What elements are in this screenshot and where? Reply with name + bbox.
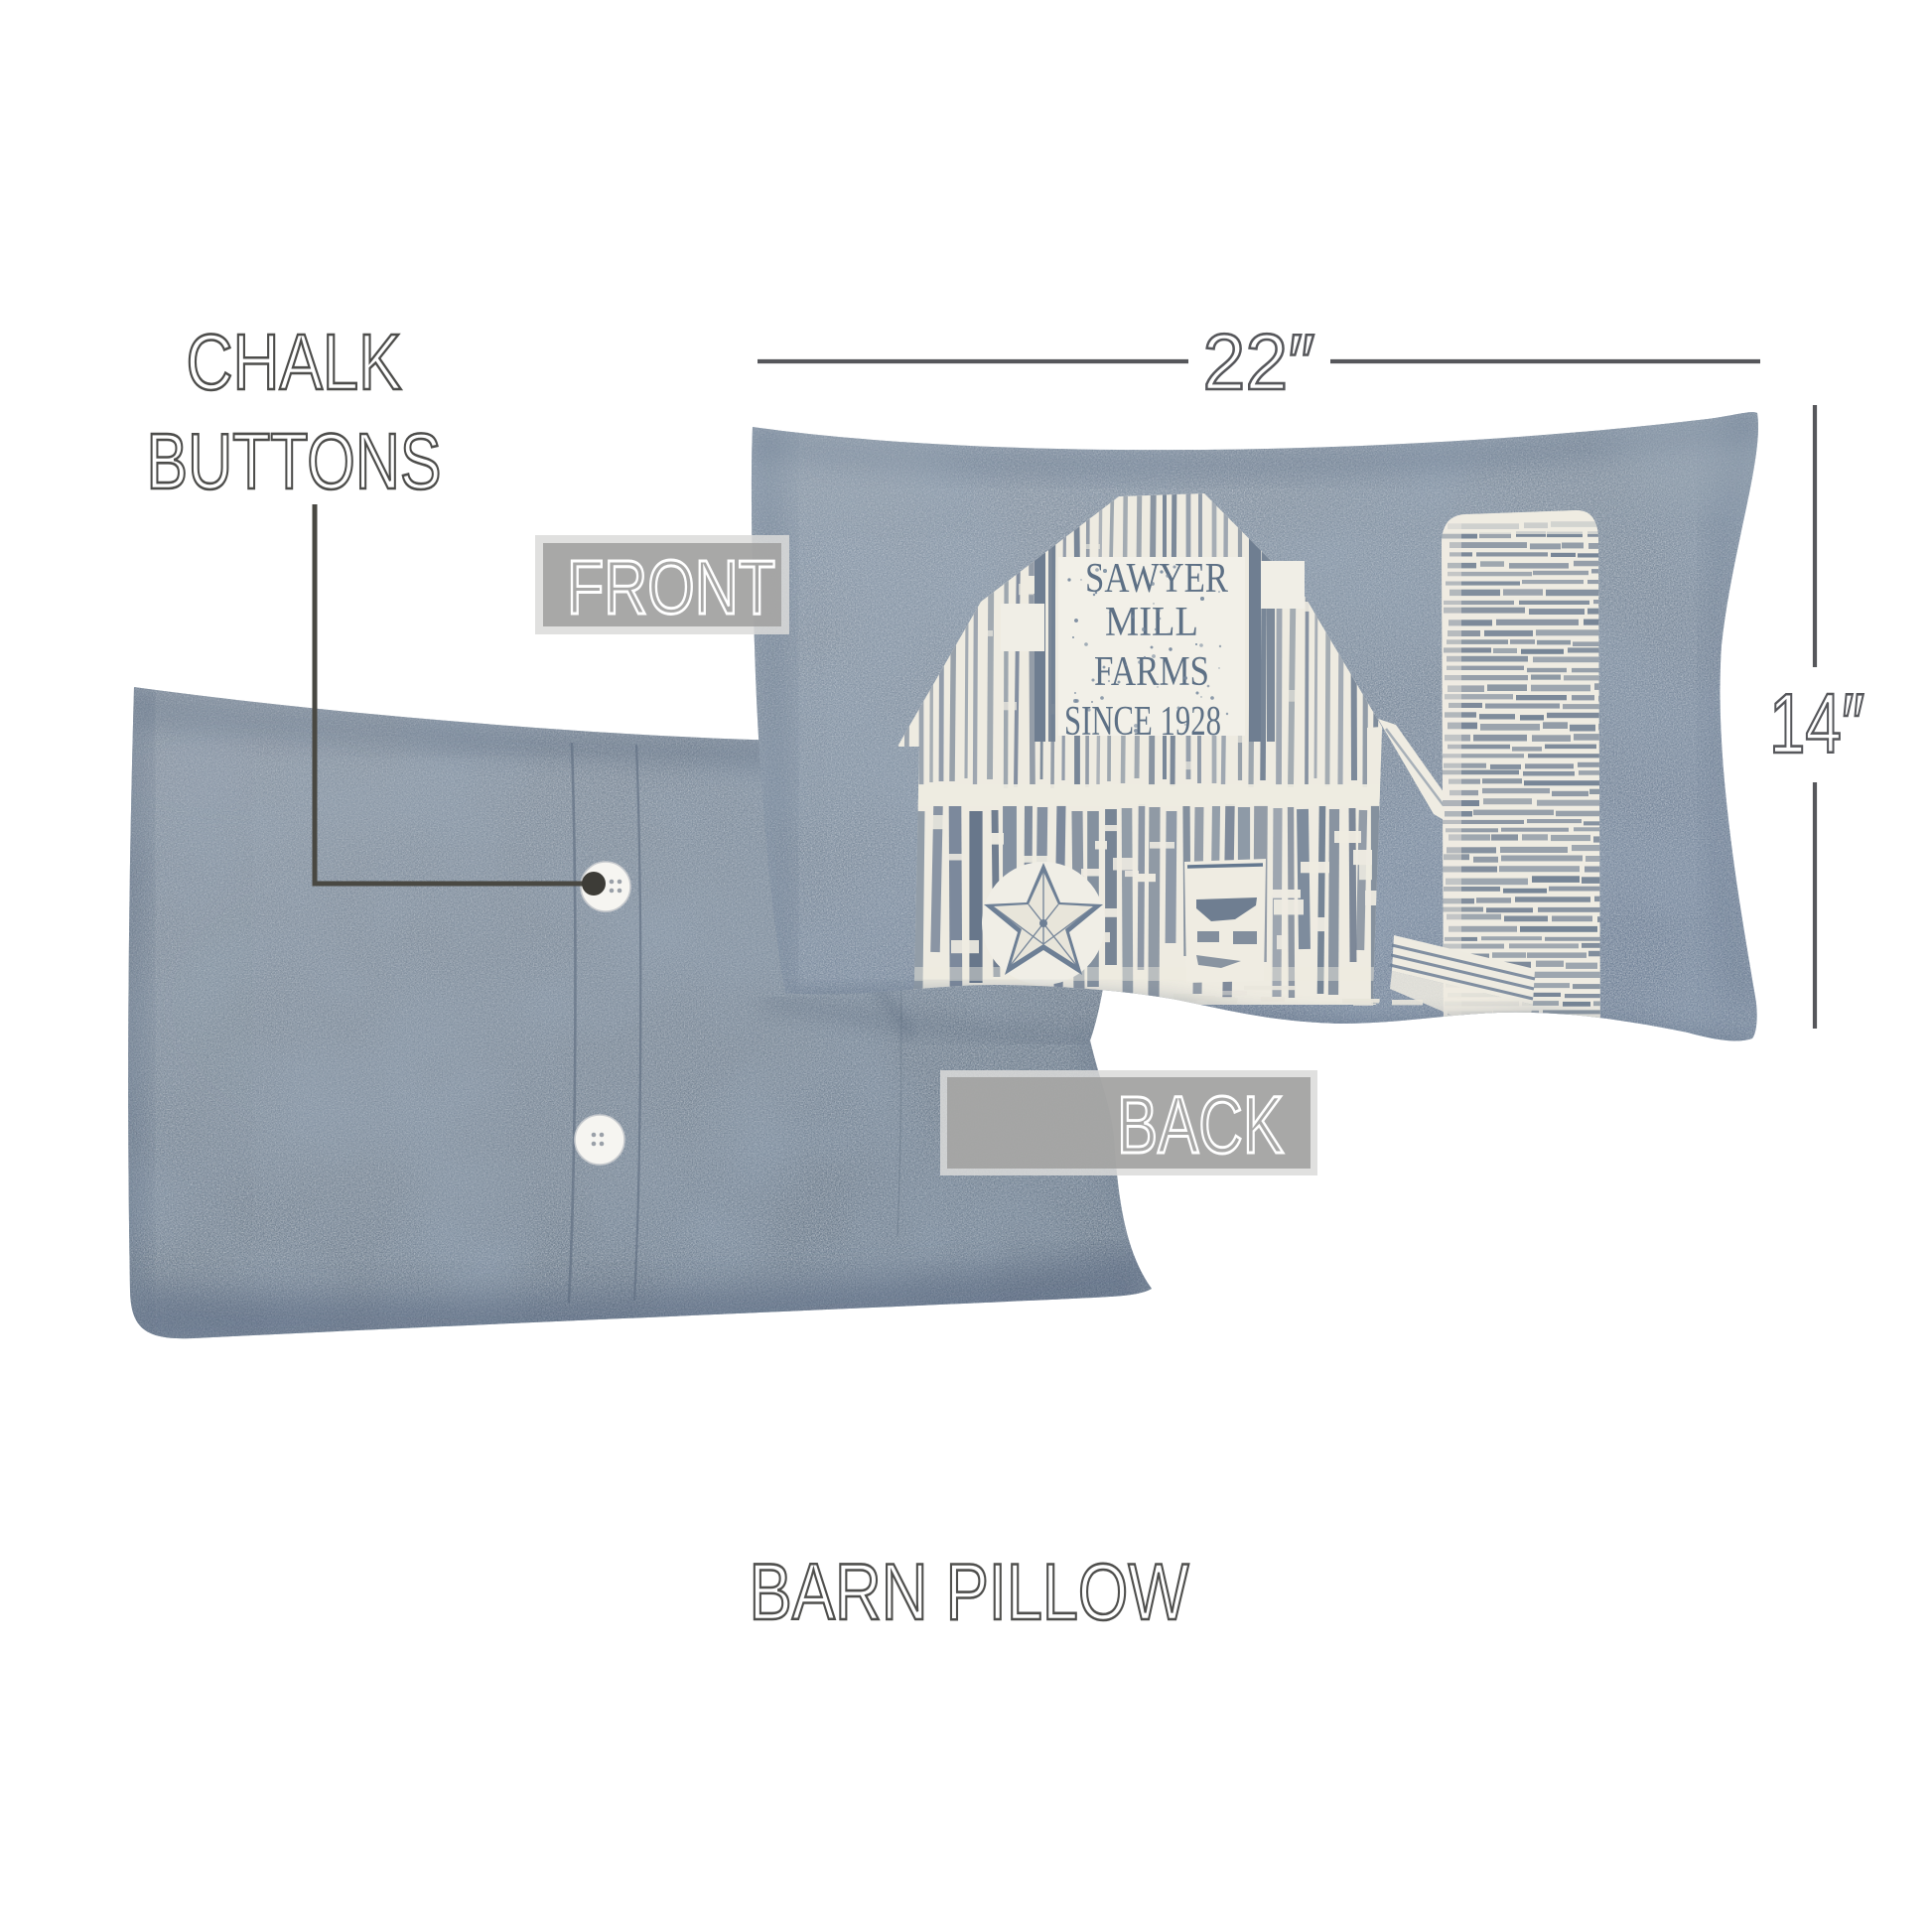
svg-text:MILL: MILL [1105, 600, 1198, 645]
svg-text:SAWYER: SAWYER [1085, 556, 1228, 602]
svg-text:FRONT: FRONT [567, 545, 775, 630]
svg-text:SINCE 1928: SINCE 1928 [1064, 699, 1221, 745]
svg-text:FARMS: FARMS [1094, 649, 1209, 695]
svg-text:CHALK: CHALK [187, 318, 402, 406]
svg-text:22″: 22″ [1203, 318, 1315, 406]
svg-text:14″: 14″ [1769, 677, 1864, 771]
svg-text:BUTTONS: BUTTONS [147, 417, 442, 505]
svg-text:BARN PILLOW: BARN PILLOW [750, 1548, 1189, 1637]
svg-text:BACK: BACK [1117, 1080, 1284, 1171]
